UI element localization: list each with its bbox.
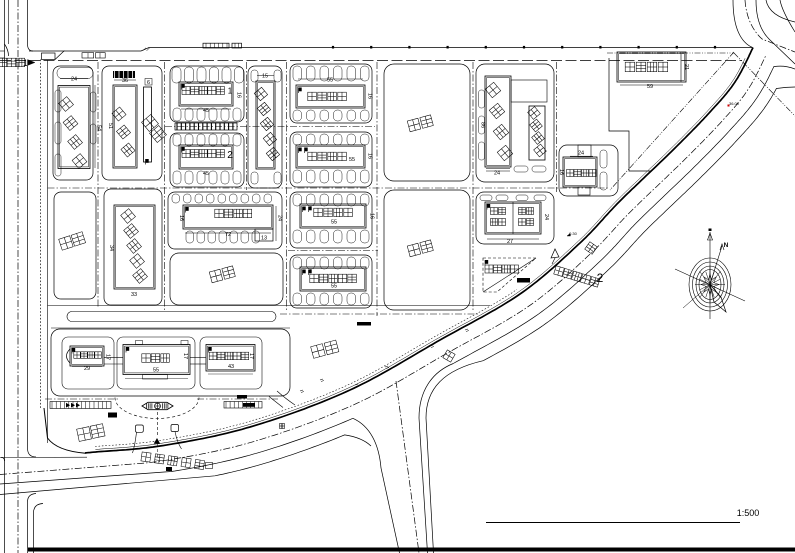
svg-text:55: 55 [331,220,337,226]
svg-text:43: 43 [228,364,234,370]
svg-text:15: 15 [262,74,268,80]
svg-text:16: 16 [367,93,373,99]
svg-text:24: 24 [71,77,77,83]
svg-text:55: 55 [349,157,355,163]
svg-text:55: 55 [331,284,337,290]
svg-text:24: 24 [277,215,283,221]
svg-text:16: 16 [236,92,242,98]
svg-text:51: 51 [107,123,113,129]
svg-text:24: 24 [543,214,549,220]
svg-text:13: 13 [261,236,267,242]
svg-text:1: 1 [228,87,233,96]
svg-text:2: 2 [597,271,604,285]
svg-text:55: 55 [153,368,159,374]
svg-text:17: 17 [248,353,254,359]
svg-text:34: 34 [108,245,114,251]
svg-text:N: N [724,242,729,249]
svg-text:55: 55 [327,78,333,84]
svg-text:16: 16 [178,215,184,221]
svg-text:29: 29 [84,366,90,372]
svg-text:1:500: 1:500 [737,508,760,518]
svg-text:21: 21 [683,64,689,70]
svg-text:36: 36 [122,78,128,84]
svg-text:17: 17 [105,354,111,360]
svg-text:24: 24 [494,171,500,177]
svg-text:33: 33 [131,292,137,298]
svg-text:17: 17 [182,353,188,359]
svg-text:2: 2 [227,150,233,161]
svg-text:36.00: 36.00 [729,101,740,106]
svg-text:27: 27 [507,239,513,245]
svg-text:16: 16 [369,213,375,219]
svg-text:16: 16 [367,153,373,159]
svg-text:24: 24 [578,151,584,157]
svg-text:16: 16 [558,169,564,175]
svg-text:1: 1 [23,58,28,68]
svg-text:54: 54 [96,125,102,131]
